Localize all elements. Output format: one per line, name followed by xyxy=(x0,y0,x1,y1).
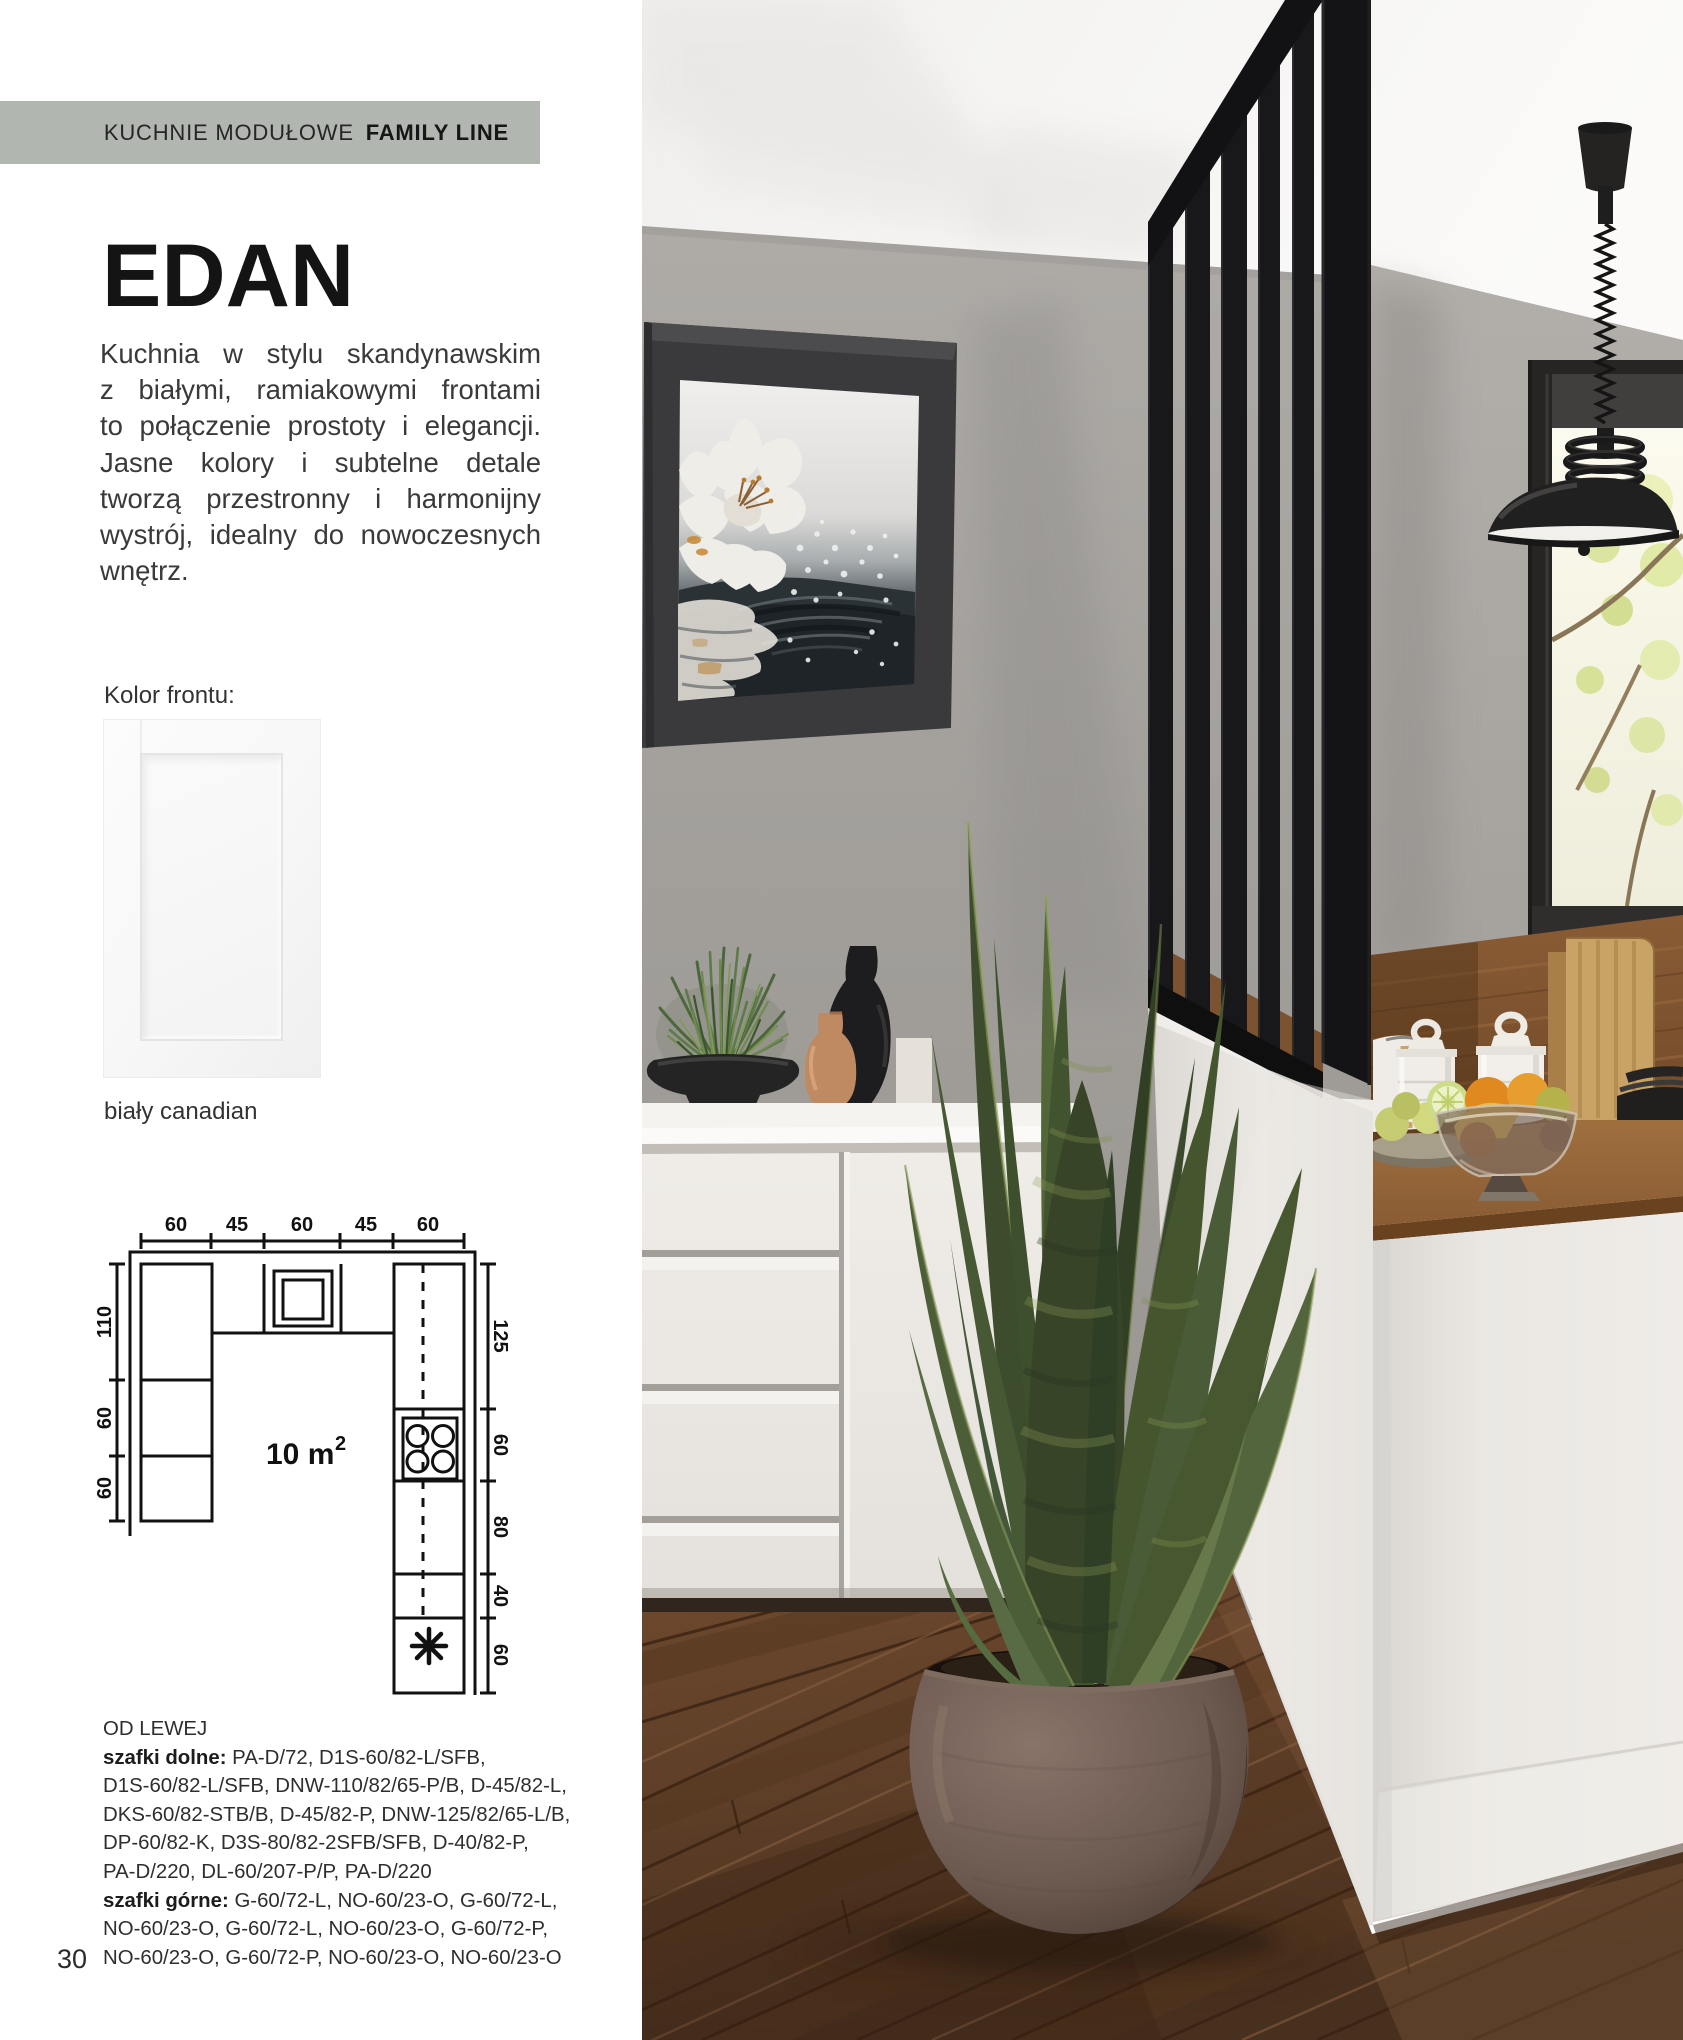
svg-text:125: 125 xyxy=(489,1319,511,1352)
svg-text:60: 60 xyxy=(417,1215,439,1236)
svg-text:60: 60 xyxy=(165,1215,187,1236)
svg-text:45: 45 xyxy=(355,1215,377,1236)
svg-text:40: 40 xyxy=(489,1585,511,1607)
svg-text:10 m: 10 m xyxy=(266,1438,334,1471)
svg-text:60: 60 xyxy=(489,1434,511,1456)
svg-text:2: 2 xyxy=(335,1433,346,1455)
svg-text:60: 60 xyxy=(489,1644,511,1666)
svg-text:45: 45 xyxy=(226,1215,248,1236)
svg-text:60: 60 xyxy=(291,1215,313,1236)
svg-text:80: 80 xyxy=(489,1516,511,1538)
svg-text:110: 110 xyxy=(94,1306,116,1338)
svg-text:60: 60 xyxy=(94,1407,116,1429)
svg-text:60: 60 xyxy=(94,1477,116,1499)
